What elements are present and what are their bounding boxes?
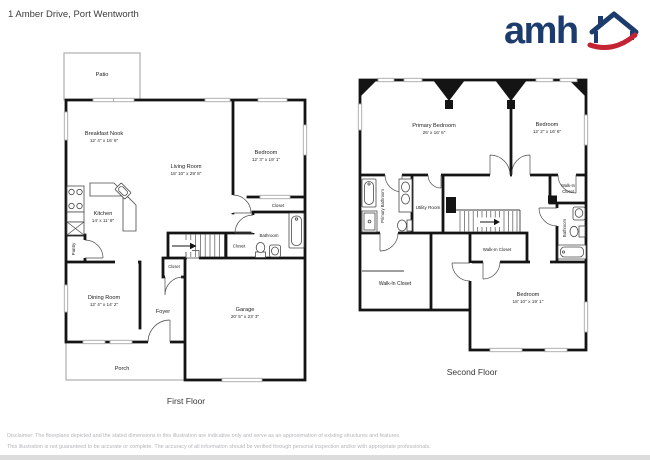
room-label-bedroom-right: Bedroom [536,122,559,128]
room-label-porch: Porch [115,366,130,372]
room-label-utility-room: Utility Room [416,205,441,210]
second-floor-label: Second Floor [447,367,498,377]
room-label-closet-foyer: Closet [168,264,180,269]
floorplan-page: { "header": { "title": "1 Amber Drive, P… [0,0,650,460]
room-label-dining-room: Dining Room [88,295,121,301]
room-dims-bedroom-right: 12' 2" x 16' 6" [533,129,562,134]
room-label-foyer: Foyer [156,309,170,315]
room-dims-breakfast-nook: 12' 4" x 16' 6" [90,138,119,143]
room-label-living-room: Living Room [170,164,201,170]
room-dims-kitchen: 14' x 11' 8" [92,218,115,223]
room-label-garage: Garage [236,307,255,313]
room-label-breakfast-nook: Breakfast Nook [85,131,123,137]
room-label-patio: Patio [96,72,109,78]
room-dims-primary-bedroom: 26' x 16' 6" [423,130,446,135]
room-label-bedroom-bottom: Bedroom [517,292,540,298]
second-floor-stairs [446,197,520,232]
second-floor-plan: Primary Bedroom 26' x 16' 6" Bedroom 12'… [358,78,587,377]
room-label-bathroom-2f: Bathroom [562,218,567,237]
room-label-walk-in-closet-mid: Walk-In Closet [483,247,512,252]
primary-bathroom-fixtures [362,179,412,232]
first-floor-label: First Floor [167,396,205,406]
disclaimer-line-2: This illustration is not guaranteed to b… [7,444,431,450]
room-label-kitchen: Kitchen [94,211,113,217]
room-label-walk-in-closet-right-2: Closet [562,189,575,194]
footer-bar [0,455,650,460]
disclaimer-line-1: Disclaimer: The floorplans depicted and … [7,433,401,439]
porch-outline [66,342,185,380]
room-label-pantry: Pantry [71,242,76,255]
room-dims-garage: 20' 5" x 23' 3" [231,314,260,319]
room-dims-bedroom-1f: 12' 3" x 19' 1" [252,157,281,162]
room-label-walk-in-closet-right-1: Walk-In [561,183,576,188]
floorplan-canvas: Patio Breakfast Nook 12' 4" x 16' 6" Liv… [0,0,650,460]
room-label-closet-hall: Closet [233,244,246,249]
room-label-bedroom-1f: Bedroom [255,150,278,156]
room-label-walk-in-closet-left: Walk-In Closet [379,281,412,287]
wall-triangles [360,80,586,204]
room-label-closet-bedroom: Closet [272,203,285,208]
room-dims-dining-room: 12' 4" x 14' 2" [90,302,119,307]
kitchen-fixtures [67,183,136,235]
first-floor-plan: Patio Breakfast Nook 12' 4" x 16' 6" Liv… [64,53,307,406]
room-label-primary-bedroom: Primary Bedroom [412,123,456,129]
room-dims-living-room: 18' 10" x 29' 8" [171,171,202,176]
room-dims-bedroom-bottom: 18' 10" x 19' 1" [513,299,544,304]
room-label-primary-bathroom: Primary Bathroom [380,189,385,223]
room-label-bathroom-1f: Bathroom [259,233,278,238]
